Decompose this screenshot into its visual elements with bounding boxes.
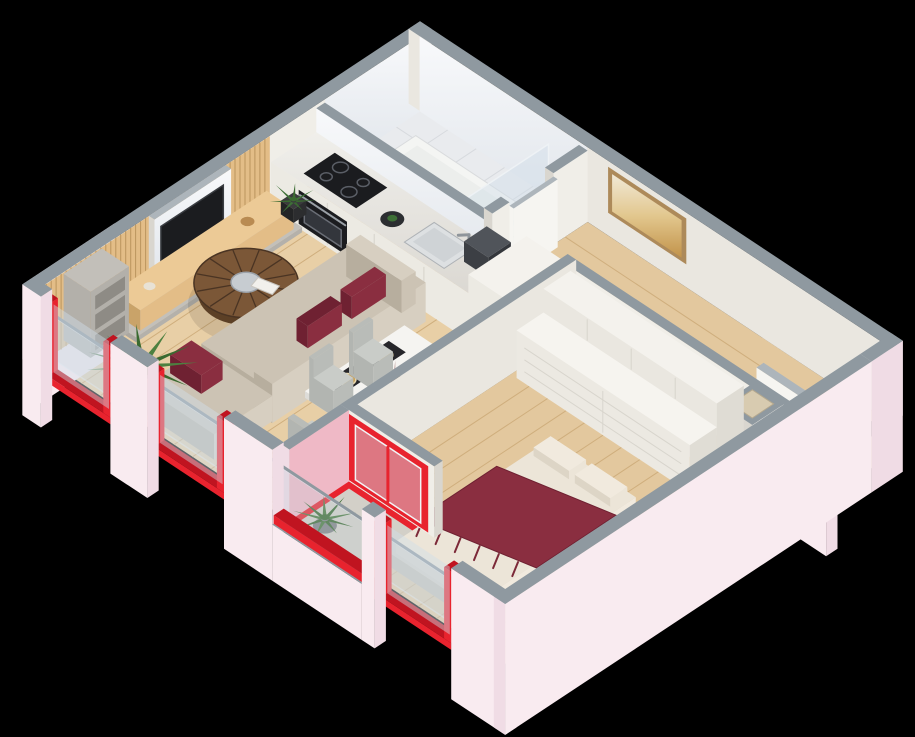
front-wall-b (110, 335, 158, 498)
console-vase-2 (144, 282, 156, 290)
console-vase-1 (241, 217, 255, 226)
screenshot-background: { "meta": { "description": "isometric 3d… (0, 0, 915, 737)
apartment-3d-render (0, 0, 915, 737)
apartment-3d-floor-plan (0, 0, 915, 737)
front-wall-a (22, 277, 52, 428)
front-wall-d (362, 502, 386, 649)
decor-tray-plant (387, 215, 397, 222)
